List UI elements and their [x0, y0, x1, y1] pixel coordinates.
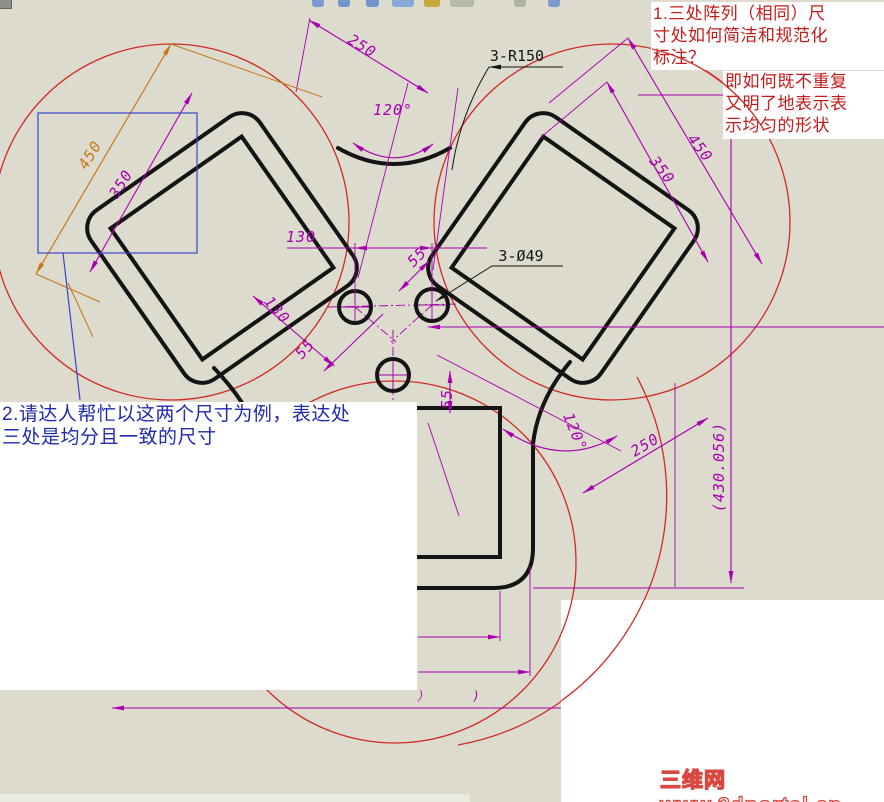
centerlines — [328, 289, 458, 400]
toolbar-icon-fragment[interactable] — [424, 0, 440, 7]
toolbar-icon-fragment[interactable] — [548, 0, 560, 7]
construction-circle-left — [0, 44, 349, 400]
note1-sub-text[interactable]: 即如何既不重复 又明了地表示表 示均匀的形状 — [723, 71, 884, 139]
ui-corner-fragment — [0, 0, 12, 9]
page-edge-fragment — [0, 794, 470, 802]
note2-text[interactable]: 2.请达人帮忙以这两个尺寸为例，表达处 三处是均分且一致的尺寸 — [0, 402, 417, 449]
note1-main-text[interactable]: 1.三处阵列（相同）尺 寸处如何简洁和规范化 标注？ — [651, 2, 884, 70]
toolbar-icon-fragment[interactable] — [514, 0, 526, 7]
toolbar-icon-fragment[interactable] — [450, 0, 474, 7]
fillet-top — [338, 148, 450, 164]
toolbar-icon-fragment[interactable] — [366, 0, 379, 7]
toolbar-icon-fragment[interactable] — [312, 0, 324, 7]
watermark-text: 三维网www.3dportal.cn — [660, 764, 884, 802]
note-box-left: 2.请达人帮忙以这两个尺寸为例，表达处 三处是均分且一致的尺寸 — [0, 402, 417, 690]
toolbar-icon-fragment[interactable] — [338, 0, 350, 7]
toolbar-icon-fragment[interactable] — [392, 0, 414, 7]
selection-leader — [63, 253, 80, 400]
cad-drawing-view: 2.请达人帮忙以这两个尺寸为例，表达处 三处是均分且一致的尺寸 1.三处阵列（相… — [0, 0, 884, 802]
